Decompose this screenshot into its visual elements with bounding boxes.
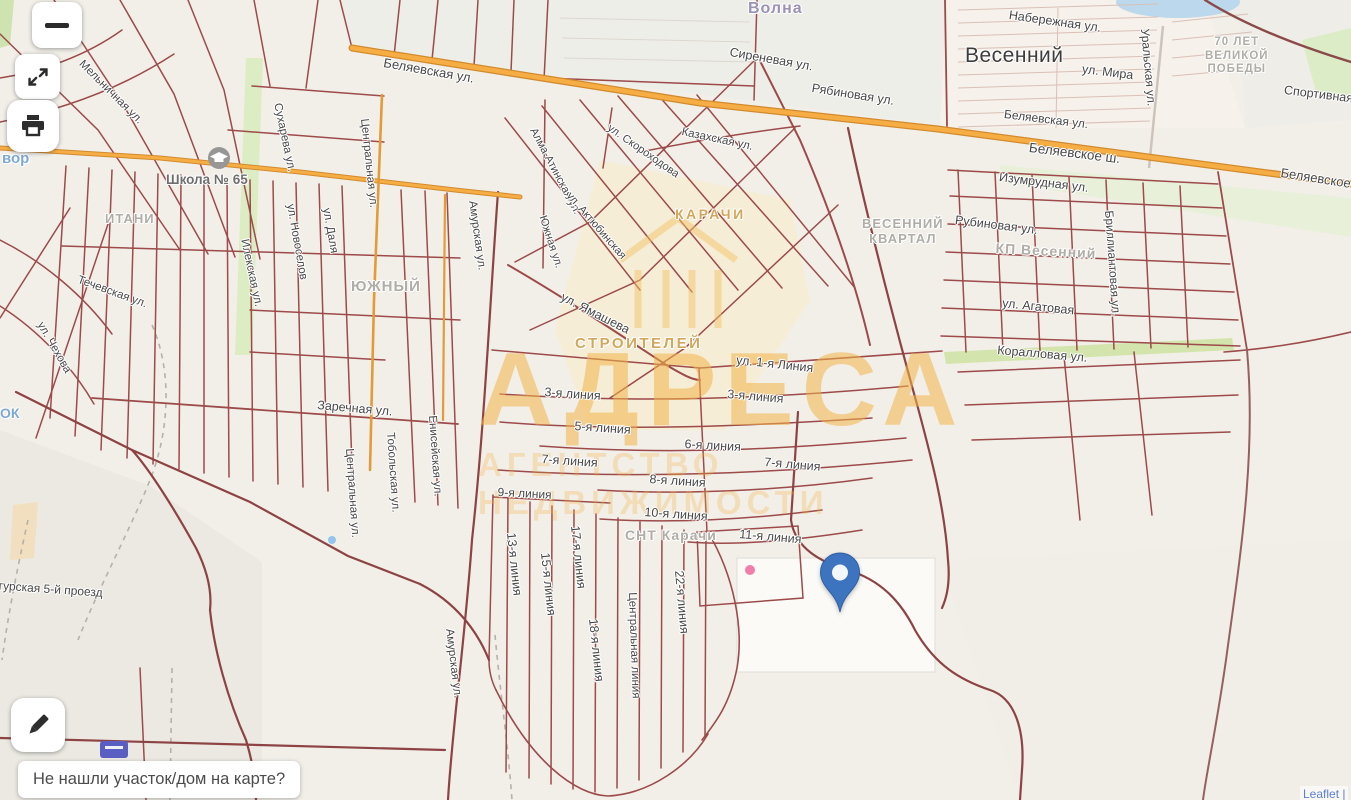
map-viewport[interactable]: АДРЕСА АГЕНТСТВО НЕДВИЖИМОСТИ ВолнаБеляе… [0, 0, 1351, 800]
map-tiles [0, 0, 1351, 800]
printer-icon [17, 110, 49, 142]
print-button[interactable] [7, 100, 59, 152]
pencil-icon [22, 709, 54, 741]
fullscreen-button[interactable] [15, 54, 60, 99]
karachi-wedge [555, 160, 810, 430]
edit-button[interactable] [11, 698, 65, 752]
bus-stop-icon [100, 741, 128, 758]
poi-water-icon [328, 536, 336, 544]
zoom-out-button[interactable] [32, 2, 82, 48]
not-found-prompt-label: Не нашли участок/дом на карте? [33, 770, 285, 789]
school-icon [208, 147, 230, 169]
leaflet-attribution[interactable]: Leaflet | [1300, 786, 1348, 800]
beige-patch [10, 502, 38, 560]
green-korallovaya [944, 338, 1234, 364]
location-pin[interactable] [817, 550, 863, 620]
expand-diagonal-icon [23, 62, 53, 92]
field-se [940, 540, 1351, 800]
minus-icon [45, 23, 69, 28]
poi-pink-icon [745, 565, 755, 575]
not-found-prompt[interactable]: Не нашли участок/дом на карте? [18, 761, 300, 798]
